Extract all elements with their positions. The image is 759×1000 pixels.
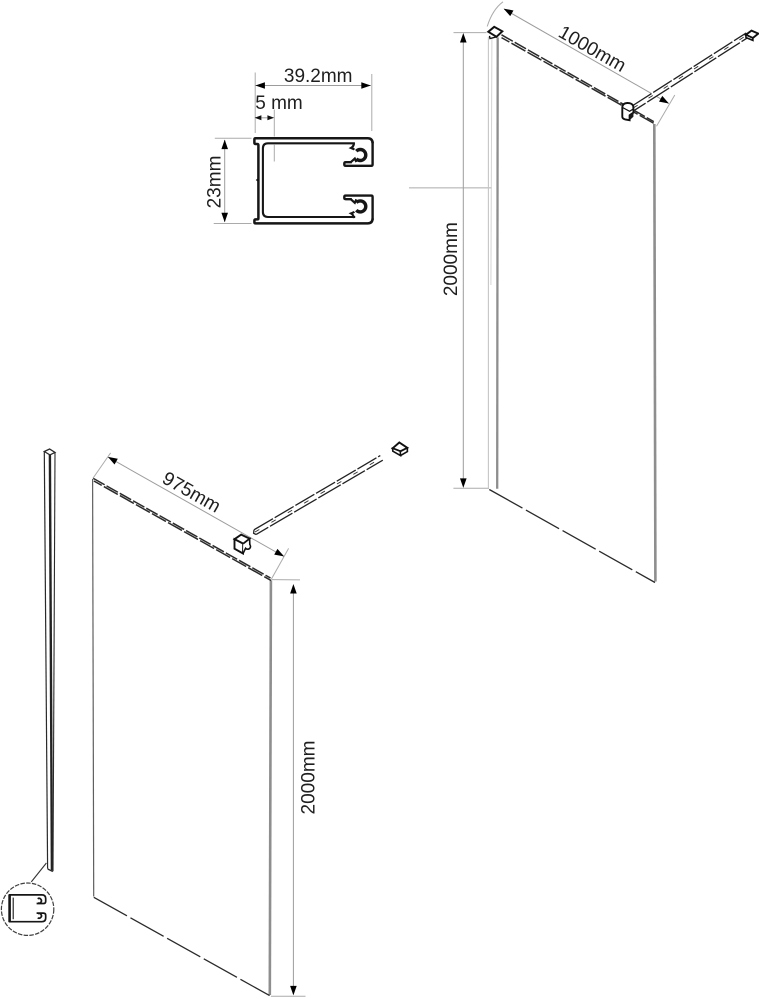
svg-text:39.2mm: 39.2mm	[284, 66, 353, 87]
svg-text:5 mm: 5 mm	[255, 93, 303, 114]
svg-text:2000mm: 2000mm	[441, 222, 462, 296]
svg-text:23mm: 23mm	[205, 156, 226, 209]
svg-text:2000mm: 2000mm	[299, 741, 320, 815]
